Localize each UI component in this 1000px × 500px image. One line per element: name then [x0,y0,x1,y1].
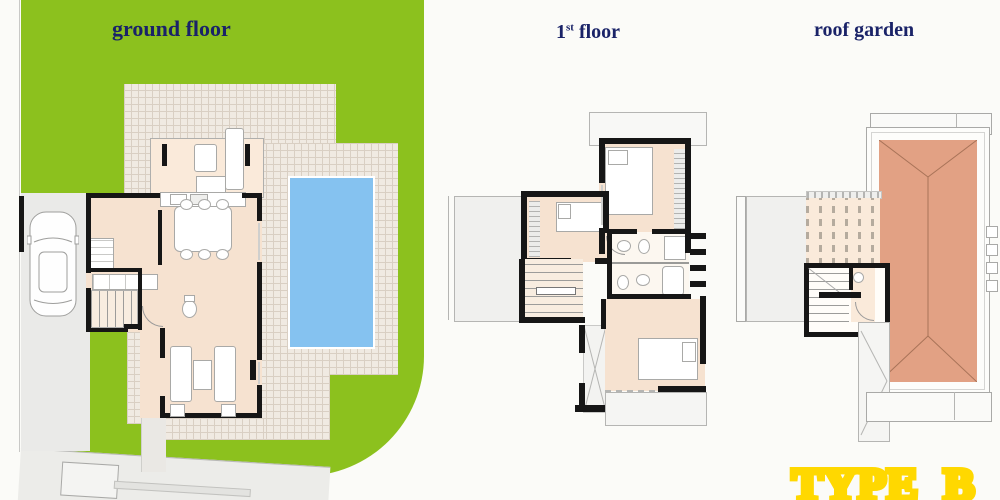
wall-segment [138,268,142,330]
wall-segment [685,138,691,253]
wall-segment [521,191,527,264]
wall-segment [257,262,262,332]
void [583,325,607,413]
wall-segment [86,328,128,332]
toilet-icon [182,300,197,318]
edge-tab [986,226,998,238]
lower-roof-slab [746,196,808,322]
wall-segment [603,191,609,233]
edge-tab [986,244,998,256]
toilet-icon [638,239,650,254]
toilet-icon [617,275,629,290]
wall-segment [521,191,609,197]
sofa [170,346,192,402]
coffee-table [193,360,212,390]
pillow [682,342,696,362]
sofa [225,128,244,190]
edge-tab [986,280,998,292]
wall-segment [599,138,605,183]
wall-segment [599,138,691,144]
garage-roof-slab [454,196,528,322]
side-table [221,404,236,417]
pillow [608,150,628,165]
base-divider [954,392,955,420]
balcony-slab [605,392,707,426]
wall-segment [245,144,250,166]
chair [180,249,193,260]
kitchen-cabinets [92,274,158,290]
wall-segment [160,328,165,358]
dining-table [174,206,232,252]
wall-segment [158,210,162,265]
pillow [558,204,571,219]
toilet-tank [184,295,195,302]
first-floor-title-number: 1 [556,21,566,43]
fridge [90,238,114,270]
first-floor-title-ordinal: st [566,21,574,33]
chair [216,199,229,210]
side-table [170,404,185,417]
chair [198,249,211,260]
window [258,362,260,384]
sofa [214,346,236,402]
edge-tab [986,262,998,274]
wall-segment [519,259,525,323]
wall-segment [19,196,24,252]
shower-icon [664,236,686,260]
type-label: TYPE B TYPE B [792,462,1000,500]
walkway-edge [114,481,251,497]
car-icon [27,208,79,320]
chair [198,199,211,210]
slab-edge-bar [736,196,746,322]
ramp-strip [858,322,890,442]
sink-icon [636,274,650,286]
hip-roof [879,140,977,382]
closet [529,201,540,257]
stair-rail [819,292,861,298]
base-band [866,392,992,422]
wall-segment [257,385,262,418]
vent-circle [853,272,864,283]
wall-segment [86,193,160,198]
wall-segment [601,299,606,329]
wall-segment [86,288,91,332]
floor-plan-sheet: ground floor 1st floor roof garden TYPE … [0,0,1000,500]
armchair [194,144,217,172]
wall-segment [124,324,140,329]
wall-segment [257,193,262,221]
balcony-bar [690,265,706,271]
wall-segment [162,144,167,166]
wall-segment [86,268,142,272]
wall-segment [700,296,706,364]
wall-segment [519,317,585,323]
window [258,223,260,260]
first-floor-title-word: floor [579,21,620,43]
balcony-bar [690,233,706,239]
ground-floor-title: ground floor [112,16,231,42]
coffee-table [196,176,226,193]
stair-rail [536,287,576,295]
chair [216,249,229,260]
pergola [806,198,880,265]
walkway-step [60,462,119,499]
wall-segment [607,229,612,299]
patio-back-band [165,418,265,440]
slab-edge-line [448,196,449,320]
wall-segment [257,330,262,360]
wall-segment [579,325,585,353]
type-label-outline: TYPE B [792,462,975,500]
patio-hatch-strip [127,332,141,424]
wall-segment [250,360,256,380]
first-floor-title: 1st floor [556,21,620,44]
bathtub-icon [662,266,684,296]
stairs [90,290,138,328]
balcony-bar [690,281,706,287]
wall-segment [652,229,691,234]
swimming-pool [288,176,375,349]
chair [180,199,193,210]
bathroom-divider [607,262,689,264]
wall-segment [86,193,91,273]
roof-garden-title: roof garden [814,19,914,42]
balcony-bar [690,249,706,255]
